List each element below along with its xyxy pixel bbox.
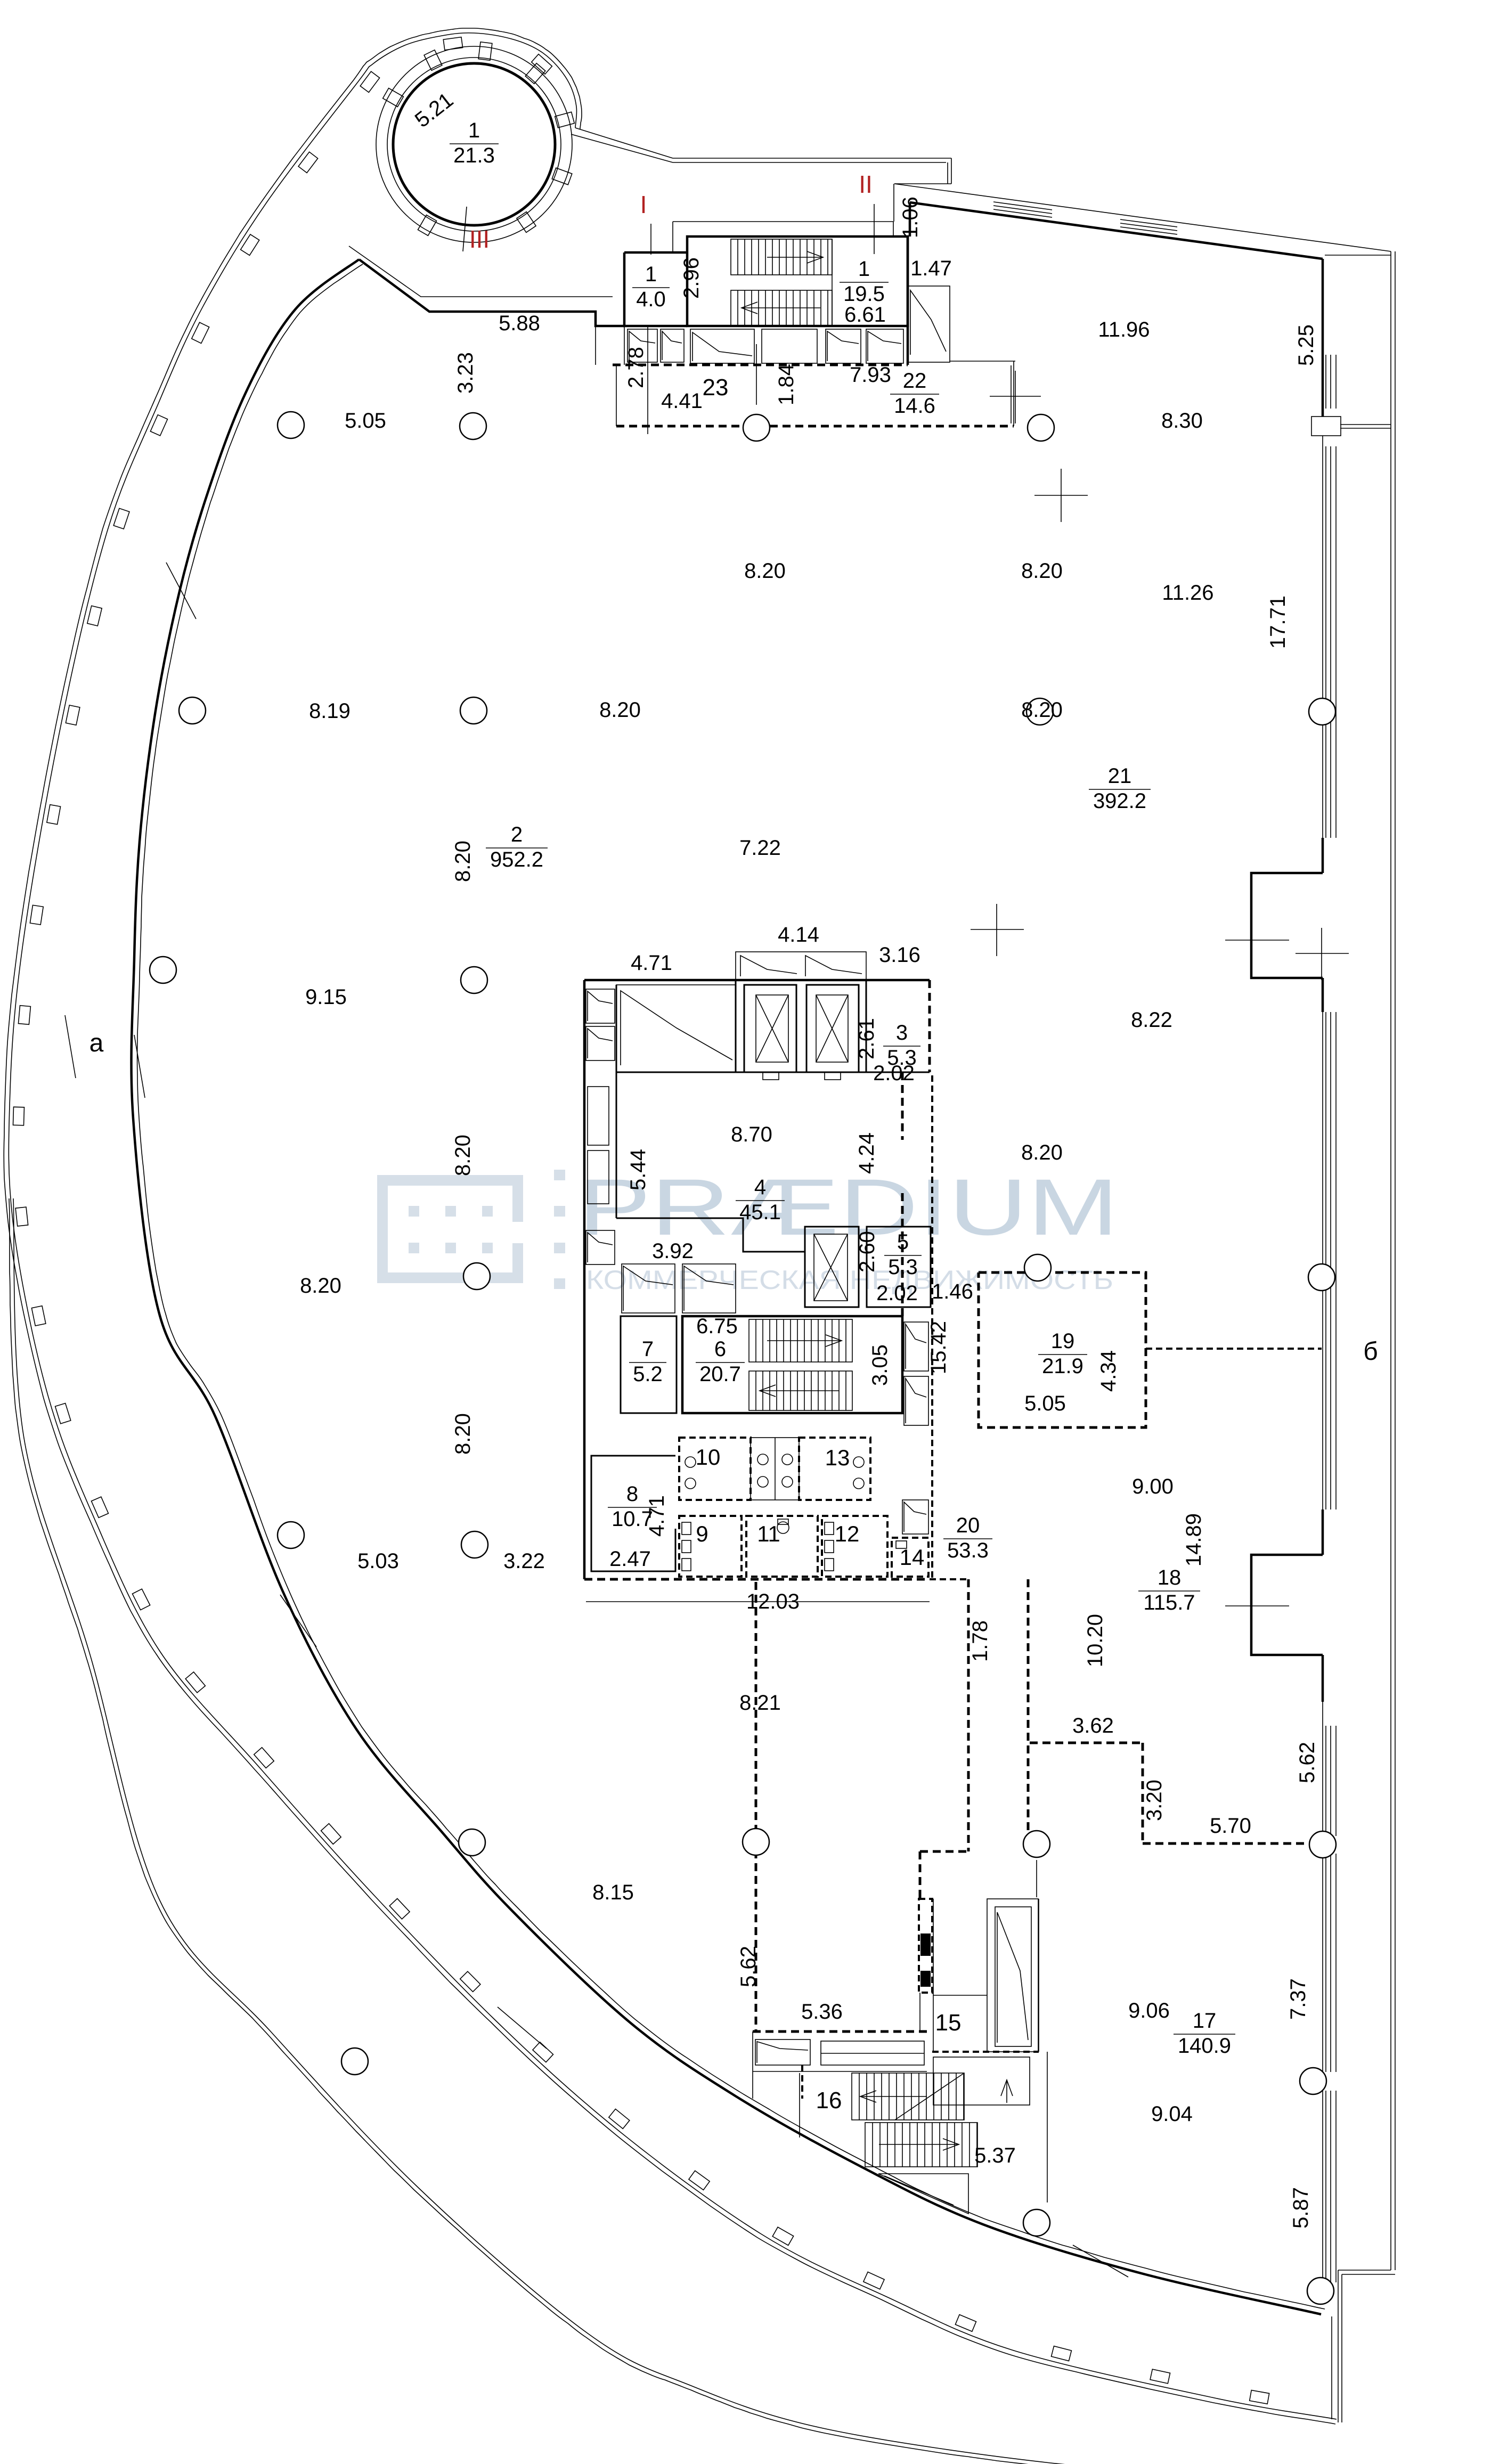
svg-text:5.37: 5.37 bbox=[974, 2144, 1016, 2167]
svg-text:3.16: 3.16 bbox=[879, 943, 920, 967]
svg-text:22: 22 bbox=[903, 369, 927, 393]
svg-text:4.14: 4.14 bbox=[778, 923, 819, 947]
svg-text:3.20: 3.20 bbox=[1143, 1780, 1166, 1821]
svg-text:2.96: 2.96 bbox=[680, 257, 703, 299]
svg-text:115.7: 115.7 bbox=[1143, 1591, 1195, 1614]
svg-text:7.93: 7.93 bbox=[850, 363, 891, 387]
svg-text:4.0: 4.0 bbox=[636, 288, 666, 311]
svg-text:140.9: 140.9 bbox=[1178, 2034, 1231, 2058]
svg-text:5.2: 5.2 bbox=[633, 1362, 663, 1386]
svg-text:8.20: 8.20 bbox=[1021, 1141, 1063, 1164]
svg-text:1.47: 1.47 bbox=[910, 257, 952, 280]
svg-text:1.46: 1.46 bbox=[932, 1280, 973, 1303]
svg-text:5.62: 5.62 bbox=[1296, 1742, 1319, 1783]
svg-text:8.20: 8.20 bbox=[451, 841, 475, 882]
svg-text:13: 13 bbox=[825, 1445, 850, 1470]
svg-text:3.62: 3.62 bbox=[1072, 1714, 1114, 1737]
svg-text:5.62: 5.62 bbox=[737, 1946, 760, 1987]
svg-text:6: 6 bbox=[714, 1337, 726, 1361]
svg-text:18: 18 bbox=[1158, 1566, 1182, 1589]
svg-text:5.03: 5.03 bbox=[357, 1549, 399, 1573]
svg-text:8.20: 8.20 bbox=[599, 698, 641, 722]
svg-text:2.78: 2.78 bbox=[624, 347, 648, 388]
svg-text:9.04: 9.04 bbox=[1151, 2102, 1193, 2126]
svg-text:21.9: 21.9 bbox=[1042, 1355, 1083, 1378]
svg-text:2: 2 bbox=[511, 823, 523, 846]
svg-text:2.02: 2.02 bbox=[873, 1062, 915, 1085]
svg-text:12.03: 12.03 bbox=[746, 1590, 800, 1613]
svg-text:5.44: 5.44 bbox=[626, 1149, 650, 1190]
svg-text:4.71: 4.71 bbox=[631, 951, 672, 975]
svg-text:8.20: 8.20 bbox=[1021, 559, 1063, 583]
svg-text:8.20: 8.20 bbox=[744, 559, 786, 583]
svg-text:1: 1 bbox=[645, 263, 657, 286]
svg-text:7.37: 7.37 bbox=[1286, 1978, 1310, 2020]
svg-text:21.3: 21.3 bbox=[453, 144, 495, 167]
svg-text:II: II bbox=[859, 170, 873, 198]
svg-text:6.75: 6.75 bbox=[696, 1315, 738, 1338]
svg-text:8.19: 8.19 bbox=[309, 699, 351, 723]
svg-text:10: 10 bbox=[696, 1445, 721, 1470]
svg-text:5.25: 5.25 bbox=[1294, 324, 1318, 366]
svg-text:11.26: 11.26 bbox=[1162, 581, 1213, 605]
svg-text:15.42: 15.42 bbox=[927, 1321, 950, 1374]
svg-text:4.41: 4.41 bbox=[661, 389, 703, 413]
svg-text:PRÆDIUM: PRÆDIUM bbox=[578, 1162, 1119, 1252]
svg-text:8.20: 8.20 bbox=[1021, 698, 1063, 722]
svg-text:1: 1 bbox=[858, 257, 870, 281]
svg-text:3.05: 3.05 bbox=[868, 1344, 892, 1386]
svg-text:8.22: 8.22 bbox=[1131, 1008, 1172, 1032]
svg-text:3: 3 bbox=[896, 1021, 908, 1045]
svg-text:4.24: 4.24 bbox=[855, 1132, 878, 1174]
svg-text:5.05: 5.05 bbox=[1024, 1392, 1066, 1415]
svg-text:8.70: 8.70 bbox=[731, 1123, 772, 1146]
svg-text:5.88: 5.88 bbox=[499, 312, 540, 335]
svg-text:3.22: 3.22 bbox=[503, 1549, 545, 1573]
svg-text:8.21: 8.21 bbox=[739, 1691, 781, 1715]
svg-text:8.20: 8.20 bbox=[300, 1274, 341, 1298]
svg-text:16: 16 bbox=[816, 2087, 842, 2114]
svg-text:I: I bbox=[640, 191, 647, 218]
svg-text:15: 15 bbox=[935, 2010, 962, 2036]
svg-text:1: 1 bbox=[468, 119, 480, 142]
svg-text:53.3: 53.3 bbox=[947, 1539, 989, 1562]
svg-text:952.2: 952.2 bbox=[490, 848, 543, 871]
svg-text:20.7: 20.7 bbox=[699, 1362, 741, 1386]
svg-text:3.23: 3.23 bbox=[454, 352, 477, 394]
svg-text:392.2: 392.2 bbox=[1093, 789, 1146, 813]
svg-text:9.15: 9.15 bbox=[305, 985, 347, 1009]
svg-text:20: 20 bbox=[956, 1514, 980, 1537]
svg-text:9.00: 9.00 bbox=[1132, 1475, 1174, 1498]
svg-text:б: б bbox=[1363, 1337, 1378, 1366]
svg-text:5.05: 5.05 bbox=[345, 409, 386, 433]
svg-text:III: III bbox=[469, 225, 490, 253]
svg-text:19.5: 19.5 bbox=[843, 282, 885, 306]
svg-text:17: 17 bbox=[1193, 2009, 1217, 2033]
svg-text:17.71: 17.71 bbox=[1266, 595, 1290, 649]
svg-text:1.84: 1.84 bbox=[775, 364, 798, 405]
svg-text:8.20: 8.20 bbox=[451, 1413, 475, 1455]
svg-text:19: 19 bbox=[1051, 1329, 1075, 1353]
svg-text:8: 8 bbox=[626, 1482, 638, 1506]
svg-text:7: 7 bbox=[642, 1337, 654, 1361]
svg-text:5.87: 5.87 bbox=[1289, 2187, 1313, 2229]
svg-text:а: а bbox=[89, 1029, 104, 1057]
svg-text:4: 4 bbox=[754, 1176, 766, 1199]
svg-text:7.22: 7.22 bbox=[739, 836, 781, 860]
svg-text:2.61: 2.61 bbox=[855, 1018, 878, 1059]
svg-text:6.61: 6.61 bbox=[844, 303, 886, 327]
svg-text:5.36: 5.36 bbox=[801, 2000, 843, 2024]
svg-text:10.20: 10.20 bbox=[1083, 1614, 1107, 1667]
svg-text:1.78: 1.78 bbox=[968, 1620, 992, 1662]
svg-text:5: 5 bbox=[897, 1230, 909, 1254]
svg-text:5.70: 5.70 bbox=[1210, 1814, 1251, 1838]
svg-text:14.6: 14.6 bbox=[894, 394, 935, 418]
svg-text:4.71: 4.71 bbox=[645, 1495, 669, 1537]
svg-text:3.92: 3.92 bbox=[652, 1239, 694, 1263]
svg-text:2.60: 2.60 bbox=[856, 1231, 879, 1272]
svg-text:2.02: 2.02 bbox=[876, 1282, 918, 1305]
svg-text:11.96: 11.96 bbox=[1098, 318, 1150, 341]
svg-text:14.89: 14.89 bbox=[1182, 1513, 1205, 1566]
svg-text:9: 9 bbox=[696, 1521, 708, 1546]
svg-text:23: 23 bbox=[703, 374, 729, 401]
svg-text:4.34: 4.34 bbox=[1097, 1350, 1120, 1392]
svg-text:2.47: 2.47 bbox=[609, 1547, 651, 1571]
svg-text:8.15: 8.15 bbox=[592, 1881, 634, 1904]
svg-text:8.30: 8.30 bbox=[1161, 409, 1203, 433]
svg-text:9.06: 9.06 bbox=[1128, 1999, 1170, 2022]
svg-text:5.21: 5.21 bbox=[411, 88, 458, 132]
svg-text:5.3: 5.3 bbox=[888, 1255, 918, 1279]
svg-text:21: 21 bbox=[1108, 764, 1132, 788]
svg-text:11: 11 bbox=[757, 1521, 780, 1546]
svg-text:8.20: 8.20 bbox=[451, 1135, 475, 1176]
svg-text:45.1: 45.1 bbox=[739, 1201, 781, 1224]
svg-text:14: 14 bbox=[900, 1545, 925, 1570]
svg-text:12: 12 bbox=[835, 1521, 860, 1546]
